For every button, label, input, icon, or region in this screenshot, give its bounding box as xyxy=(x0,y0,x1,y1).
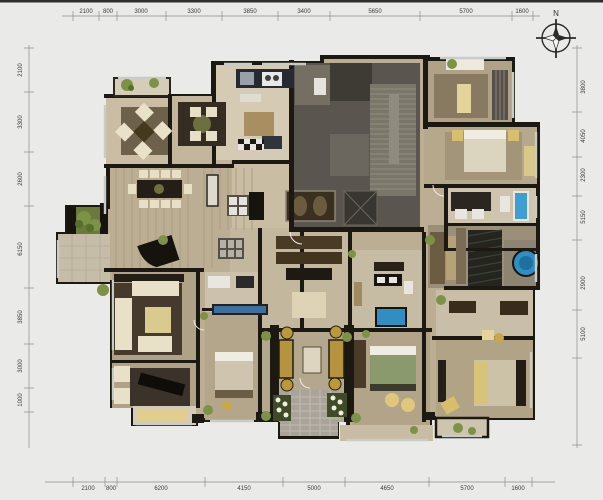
svg-text:3850: 3850 xyxy=(243,9,257,15)
svg-text:N: N xyxy=(553,9,559,18)
svg-text:2600: 2600 xyxy=(18,172,24,186)
svg-text:5000: 5000 xyxy=(307,486,321,492)
svg-text:3000: 3000 xyxy=(134,9,148,15)
svg-text:3800: 3800 xyxy=(581,80,587,94)
svg-text:5700: 5700 xyxy=(459,9,473,15)
svg-text:6150: 6150 xyxy=(18,242,24,256)
svg-text:5100: 5100 xyxy=(581,327,587,341)
svg-text:3850: 3850 xyxy=(18,310,24,324)
svg-text:2100: 2100 xyxy=(18,63,24,77)
svg-text:2100: 2100 xyxy=(79,9,93,15)
svg-text:3400: 3400 xyxy=(297,9,311,15)
svg-text:2100: 2100 xyxy=(81,486,95,492)
svg-text:5150: 5150 xyxy=(581,210,587,224)
svg-text:800: 800 xyxy=(103,9,114,15)
svg-text:2300: 2300 xyxy=(581,168,587,182)
svg-text:4150: 4150 xyxy=(237,486,251,492)
svg-text:1600: 1600 xyxy=(511,486,525,492)
svg-text:3300: 3300 xyxy=(18,115,24,129)
svg-text:4050: 4050 xyxy=(581,129,587,143)
svg-text:4650: 4650 xyxy=(380,486,394,492)
svg-text:6200: 6200 xyxy=(154,486,168,492)
svg-text:1600: 1600 xyxy=(515,9,529,15)
svg-text:800: 800 xyxy=(106,486,117,492)
svg-text:3300: 3300 xyxy=(187,9,201,15)
svg-text:5650: 5650 xyxy=(368,9,382,15)
svg-text:3000: 3000 xyxy=(18,359,24,373)
svg-text:5700: 5700 xyxy=(460,486,474,492)
svg-text:1000: 1000 xyxy=(18,393,24,407)
svg-text:2900: 2900 xyxy=(581,276,587,290)
